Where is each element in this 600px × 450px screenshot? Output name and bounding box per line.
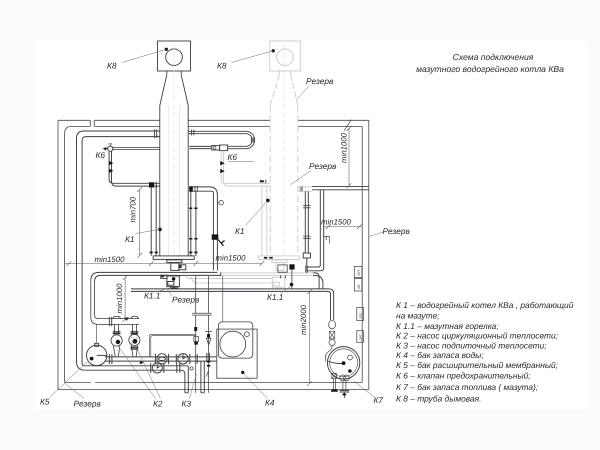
svg-text:К1.1: К1.1 bbox=[267, 292, 283, 302]
svg-text:К6: К6 bbox=[96, 150, 106, 160]
svg-text:Резерв: Резерв bbox=[172, 295, 200, 305]
svg-text:К8: К8 bbox=[107, 61, 117, 71]
svg-text:ЗУС: ЗУС bbox=[359, 312, 363, 319]
svg-text:Резерв: Резерв bbox=[383, 226, 411, 236]
svg-text:К 4 – бак запаса воды;: К 4 – бак запаса воды; bbox=[396, 350, 484, 360]
svg-text:мазутного водогрейного котла К: мазутного водогрейного котла КВа bbox=[416, 64, 564, 74]
svg-text:К7: К7 bbox=[374, 395, 384, 405]
svg-text:ЩС: ЩС bbox=[357, 283, 361, 289]
svg-text:К 3 – насос подпиточный тепло: К 3 – насос подпиточный теплосети; bbox=[396, 340, 547, 350]
svg-text:К4: К4 bbox=[265, 398, 275, 408]
svg-text:К 1 – водогрейный котел КВа ,: К 1 – водогрейный котел КВа , работающий bbox=[396, 300, 574, 310]
svg-text:min1000: min1000 bbox=[339, 132, 348, 163]
svg-text:К6: К6 bbox=[228, 152, 238, 162]
svg-text:Схема подключения: Схема подключения bbox=[453, 52, 534, 62]
svg-text:min1500: min1500 bbox=[321, 217, 352, 226]
svg-text:min700: min700 bbox=[128, 196, 137, 222]
svg-text:К 8 – труба дымовая.: К 8 – труба дымовая. bbox=[396, 393, 481, 403]
svg-text:К8: К8 bbox=[217, 61, 227, 71]
svg-text:К 2 – насос циркуляционный те: К 2 – насос циркуляционный теплосети; bbox=[396, 331, 559, 341]
svg-text:ЩУК: ЩУК bbox=[357, 269, 361, 276]
svg-text:К 1.1 – мазутная горелка;: К 1.1 – мазутная горелка; bbox=[396, 321, 499, 331]
svg-text:Резерв: Резерв bbox=[74, 399, 102, 409]
svg-text:К1: К1 bbox=[125, 234, 135, 244]
svg-text:К1.1: К1.1 bbox=[144, 291, 160, 301]
svg-text:К3: К3 bbox=[182, 399, 192, 409]
svg-text:К2: К2 bbox=[153, 399, 163, 409]
svg-text:К5: К5 bbox=[40, 397, 50, 407]
svg-text:К1: К1 bbox=[235, 226, 245, 236]
svg-text:К 7 – бак запаса топлива ( ма: К 7 – бак запаса топлива ( мазута); bbox=[396, 382, 539, 392]
svg-text:К 6 – клапан предохранительны: К 6 – клапан предохранительный; bbox=[396, 370, 531, 380]
svg-text:Резерв: Резерв bbox=[306, 76, 334, 86]
svg-text:min1000: min1000 bbox=[115, 283, 124, 314]
svg-text:Резерв: Резерв bbox=[309, 161, 337, 171]
svg-text:К 5 – бак расширительный мемб: К 5 – бак расширительный мембранный; bbox=[396, 360, 559, 370]
svg-text:min2000: min2000 bbox=[299, 304, 308, 335]
svg-text:min1500: min1500 bbox=[216, 253, 247, 262]
svg-text:на мазуте;: на мазуте; bbox=[396, 311, 440, 321]
svg-text:min1500: min1500 bbox=[95, 255, 126, 264]
